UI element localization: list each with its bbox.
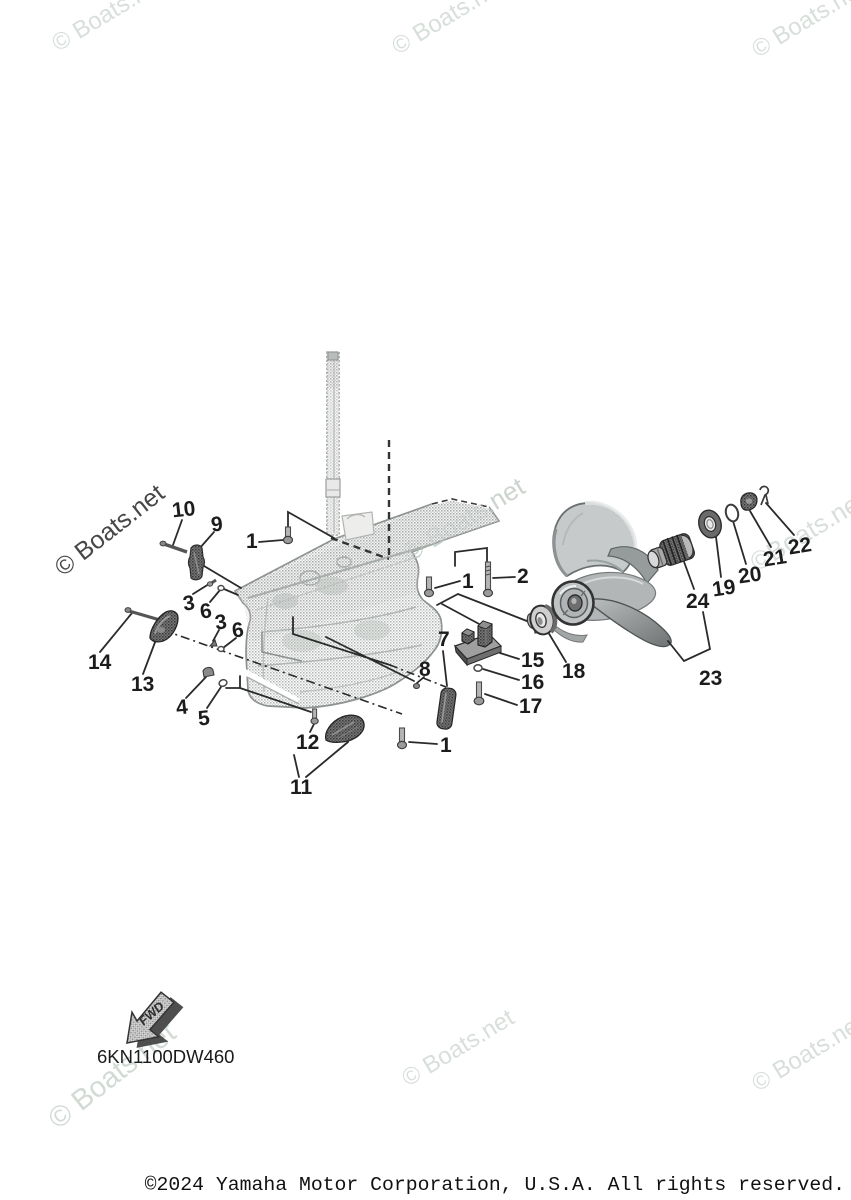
svg-text:© Boats.net: © Boats.net <box>747 1009 851 1097</box>
svg-text:13: 13 <box>131 673 154 696</box>
svg-text:© Boats.net: © Boats.net <box>747 0 851 63</box>
svg-text:17: 17 <box>519 695 542 718</box>
svg-text:© Boats.net: © Boats.net <box>43 1017 182 1136</box>
svg-text:12: 12 <box>296 731 319 754</box>
svg-text:1: 1 <box>440 734 452 757</box>
svg-text:6KN1100DW460: 6KN1100DW460 <box>97 1046 234 1067</box>
svg-text:19: 19 <box>711 575 737 601</box>
svg-text:2: 2 <box>517 565 529 588</box>
svg-text:24: 24 <box>686 590 710 613</box>
svg-text:15: 15 <box>521 649 545 672</box>
svg-text:14: 14 <box>88 651 112 674</box>
svg-text:21: 21 <box>762 545 789 571</box>
svg-text:16: 16 <box>521 671 544 694</box>
svg-text:23: 23 <box>699 667 722 690</box>
svg-text:11: 11 <box>290 776 313 799</box>
svg-text:10: 10 <box>171 497 197 522</box>
svg-text:© Boats.net: © Boats.net <box>397 1004 519 1092</box>
svg-text:4: 4 <box>175 695 189 719</box>
svg-text:© Boats.net: © Boats.net <box>49 479 170 582</box>
svg-text:18: 18 <box>562 660 586 683</box>
svg-text:© Boats.net: © Boats.net <box>47 0 169 57</box>
svg-text:6: 6 <box>231 618 246 642</box>
svg-text:5: 5 <box>197 706 211 730</box>
svg-text:22: 22 <box>787 533 814 559</box>
svg-text:6: 6 <box>199 599 214 623</box>
svg-text:1: 1 <box>462 570 474 593</box>
svg-text:3: 3 <box>214 610 229 634</box>
svg-text:©2024 Yamaha Motor Corporation: ©2024 Yamaha Motor Corporation, U.S.A. A… <box>145 1174 845 1196</box>
svg-text:20: 20 <box>737 562 763 588</box>
svg-text:3: 3 <box>182 591 197 615</box>
svg-text:7: 7 <box>438 628 450 651</box>
svg-text:8: 8 <box>419 658 431 681</box>
svg-text:1: 1 <box>246 530 258 553</box>
svg-text:© Boats.net: © Boats.net <box>387 0 509 60</box>
